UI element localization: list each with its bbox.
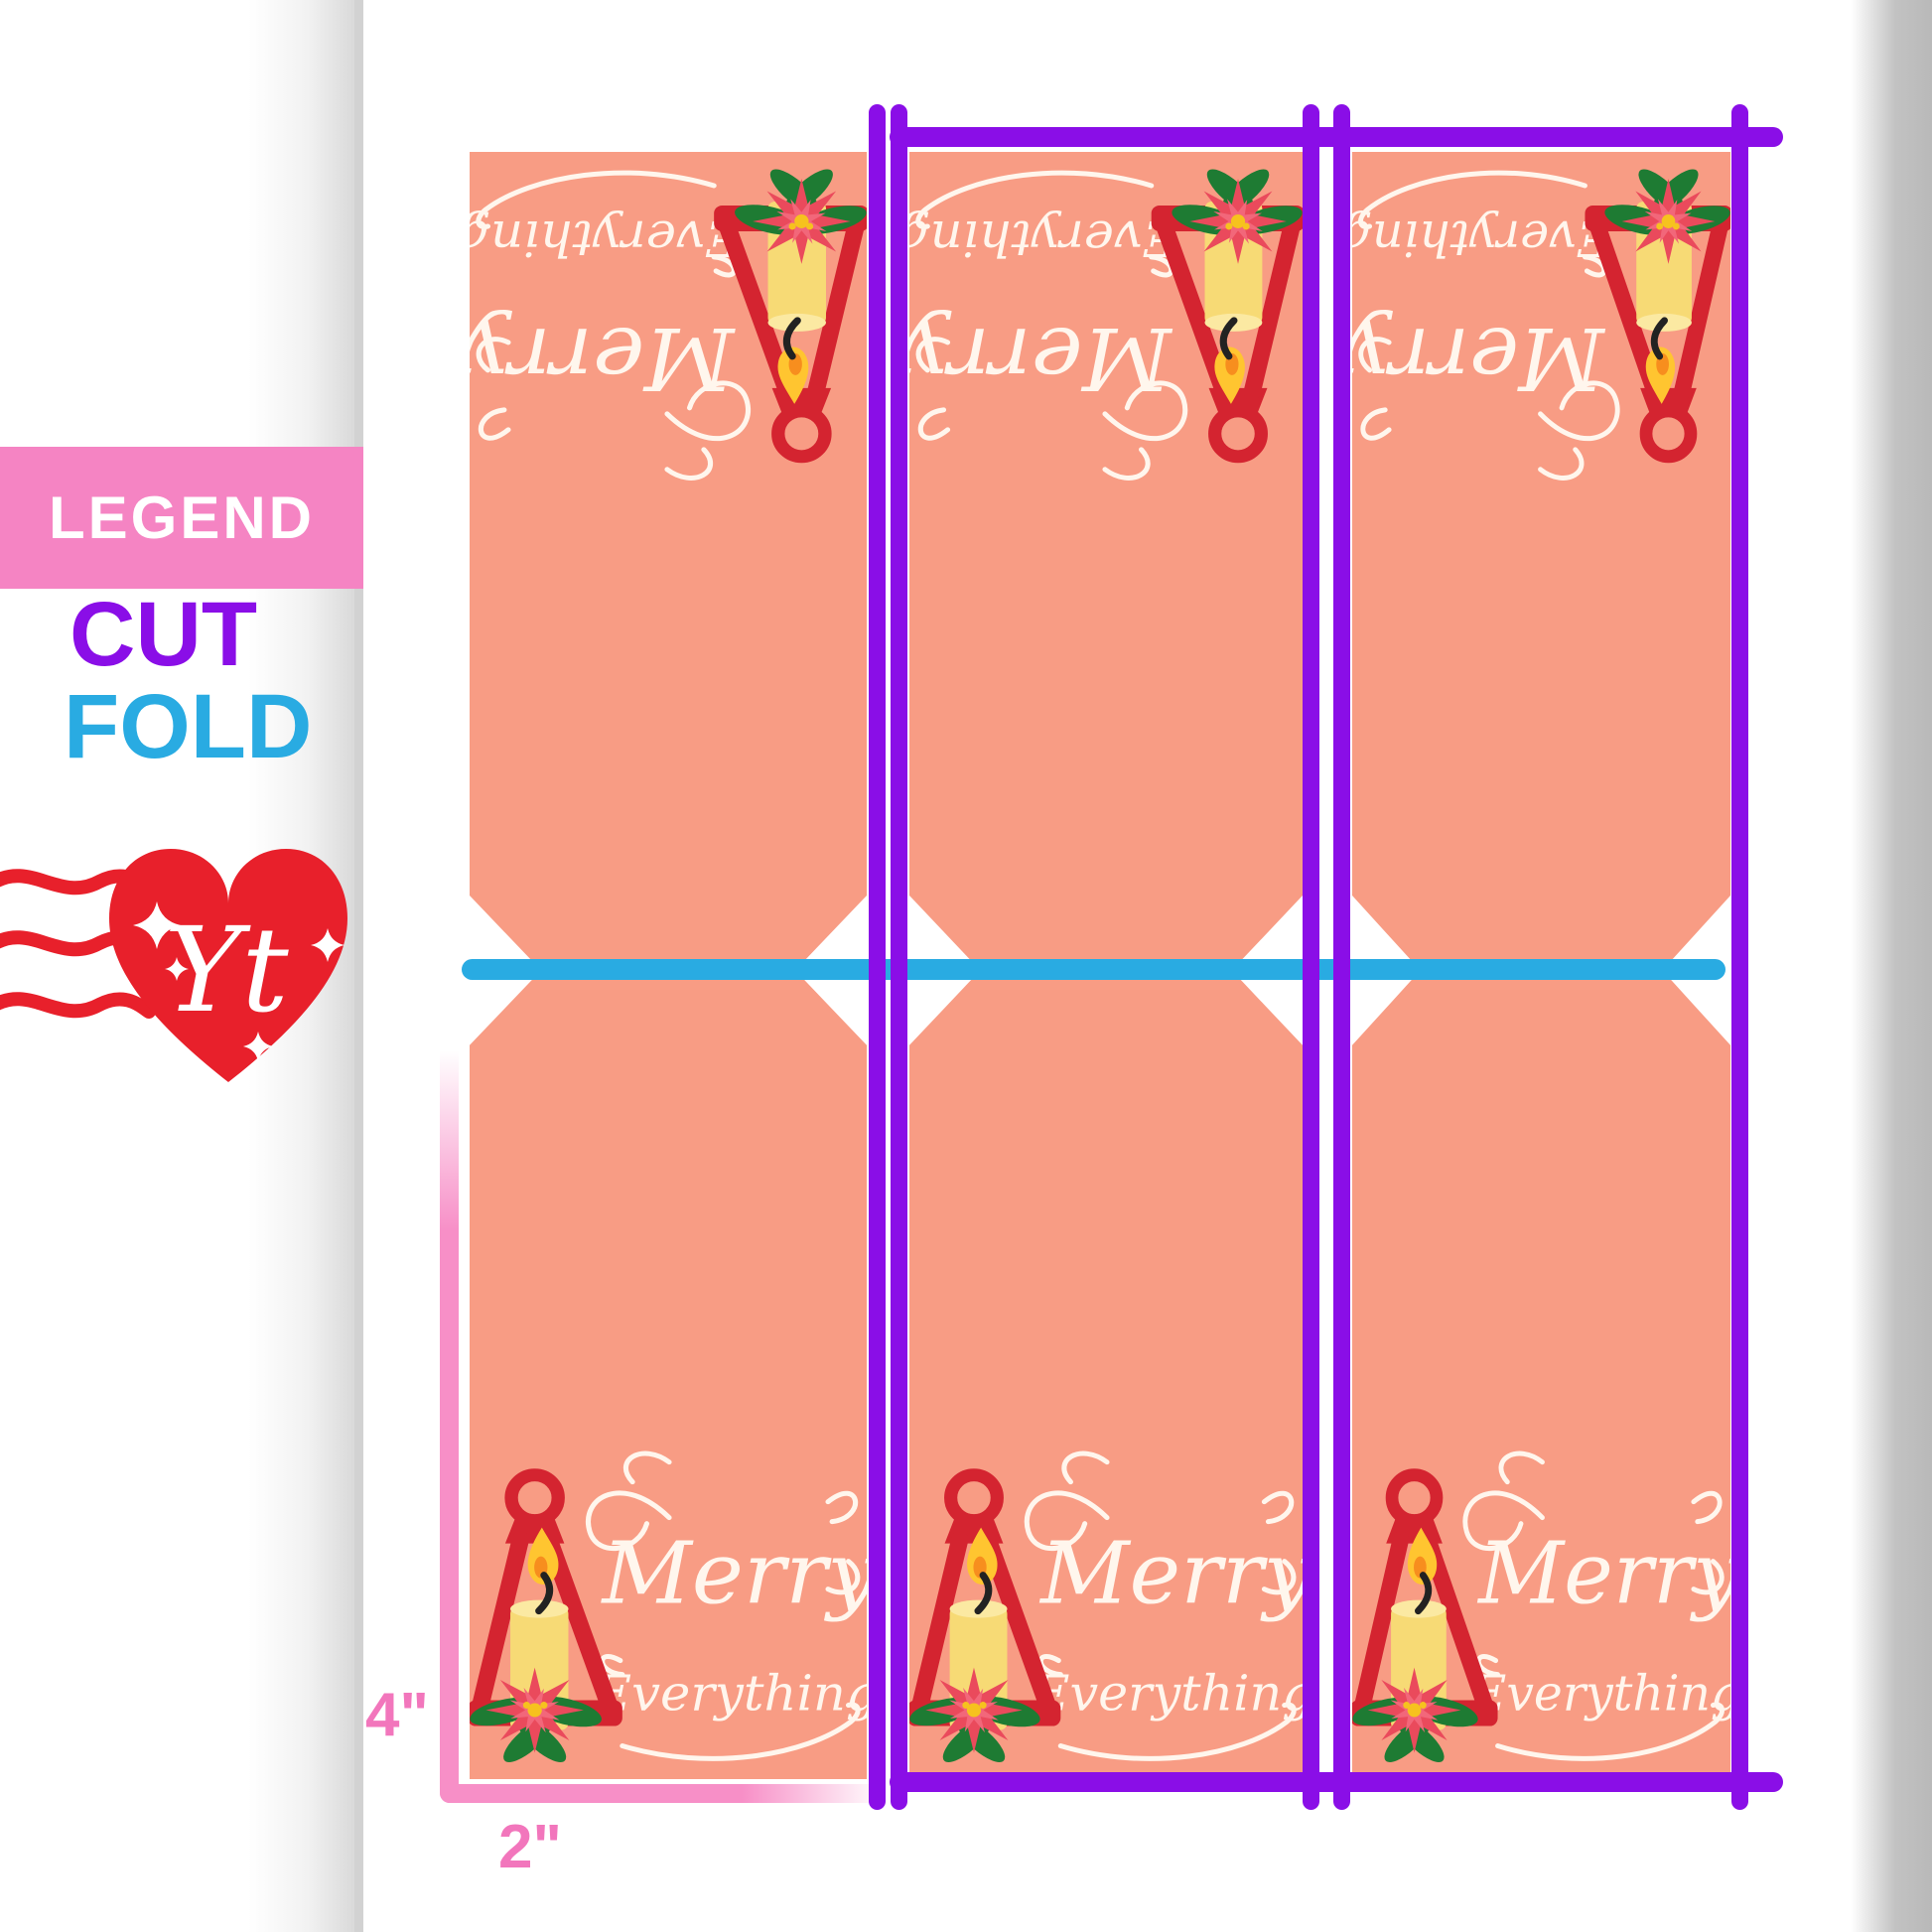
legend-banner: LEGEND <box>0 447 363 589</box>
card-2-top-half-rotated <box>909 152 1303 966</box>
cut-line-vertical-2 <box>891 104 907 1810</box>
cut-line-vertical-4 <box>1333 104 1350 1810</box>
height-dimension-label: 4" <box>365 1685 429 1746</box>
cut-line-vertical-3 <box>1303 104 1319 1810</box>
cut-line-bottom <box>890 1772 1783 1792</box>
width-dimension-label: 2" <box>498 1817 562 1878</box>
printable-template-mockup: Merry Everything <box>0 0 1932 1932</box>
dimension-bracket-vertical <box>440 1050 459 1803</box>
card-1-bottom-half <box>470 966 867 1780</box>
card-3-top-half-rotated <box>1352 152 1730 966</box>
legend-title: LEGEND <box>49 483 315 552</box>
legend-fold-label: FOLD <box>64 681 312 772</box>
page-left-edge-line <box>354 0 363 1932</box>
brand-logo: Yt <box>0 834 349 1122</box>
logo-monogram: Yt <box>164 901 289 1038</box>
card-2-bottom-half <box>909 966 1303 1780</box>
fold-line <box>462 959 1725 980</box>
legend-cut-label: CUT <box>69 589 257 680</box>
cut-line-vertical-5 <box>1731 104 1748 1810</box>
card-1-top-half-rotated <box>470 152 867 966</box>
dimension-bracket-horizontal <box>440 1784 884 1803</box>
card-3-bottom-half <box>1352 966 1730 1780</box>
cut-line-top <box>890 127 1783 147</box>
page-right-shadow <box>1851 0 1932 1932</box>
cut-line-vertical-1 <box>869 104 886 1810</box>
